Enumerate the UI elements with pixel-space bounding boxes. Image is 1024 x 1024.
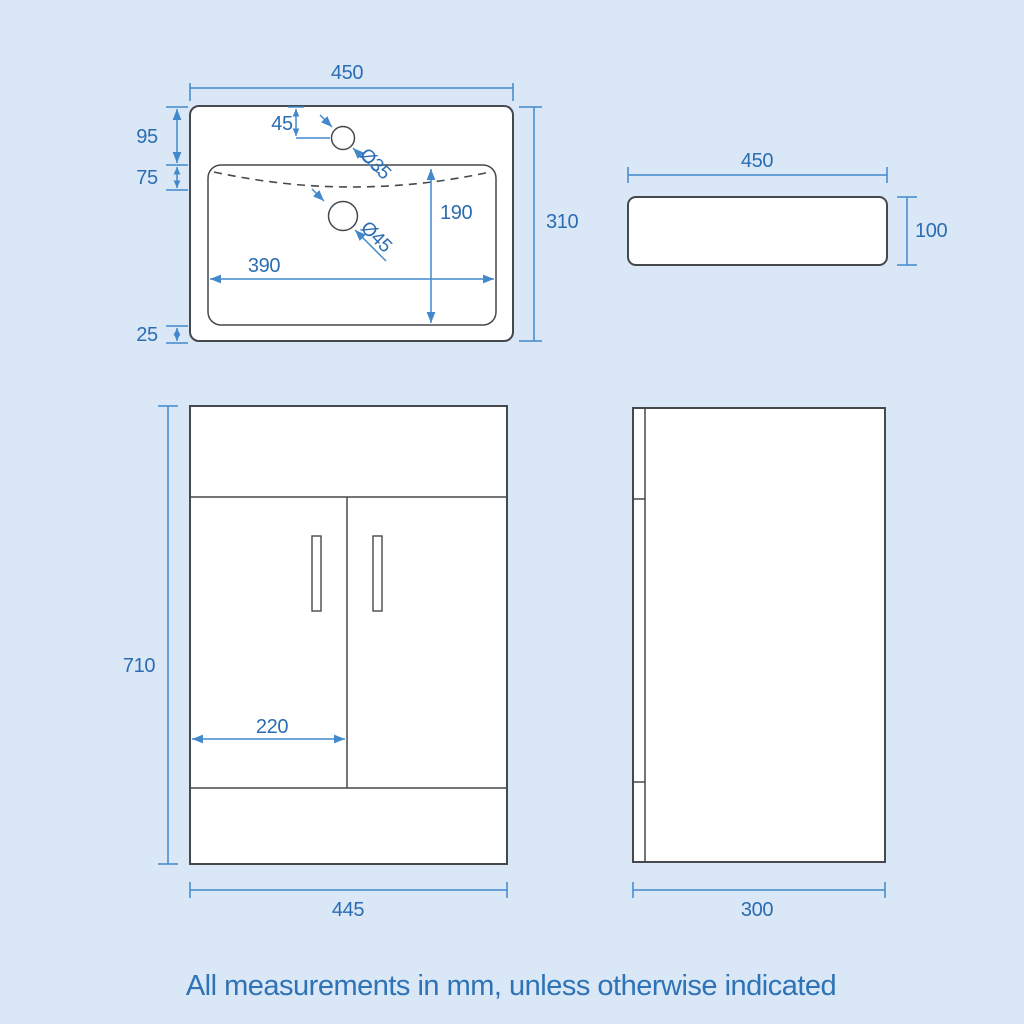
dimension-label: 75 (136, 167, 158, 189)
technical-drawing: 450 310 95 75 25 (0, 0, 1024, 1024)
dimension-label: 45 (271, 113, 293, 135)
dim-sink-side-width: 450 (628, 150, 887, 183)
dimension-label: 100 (915, 220, 947, 242)
sink-side-view: 450 100 (628, 150, 947, 265)
dimension-label: 710 (123, 655, 155, 677)
dimension-label: 220 (256, 716, 288, 738)
dim-rim-to-basin: 95 (136, 107, 188, 165)
dim-sink-overall-depth: 310 (519, 107, 578, 341)
left-door-handle (312, 536, 321, 611)
cabinet-front-outline (190, 406, 507, 864)
cabinet-side-outline (633, 408, 885, 862)
dimension-label: 450 (331, 62, 363, 84)
dimension-label: 300 (741, 899, 773, 921)
dimension-label: 95 (136, 126, 158, 148)
dim-cabinet-height: 710 (123, 406, 178, 864)
dimension-label: 450 (741, 150, 773, 172)
dim-basin-to-front: 25 (136, 324, 188, 346)
dim-sink-side-height: 100 (897, 197, 947, 265)
dimension-label: 310 (546, 211, 578, 233)
sink-side-outline (628, 197, 887, 265)
dimension-label: 390 (248, 255, 280, 277)
measurement-note: All measurements in mm, unless otherwise… (186, 970, 836, 1002)
sink-top-view: 450 310 95 75 25 (136, 62, 578, 346)
right-door-handle (373, 536, 382, 611)
dim-sink-overall-width: 450 (190, 62, 513, 101)
dimension-label: 445 (332, 899, 364, 921)
cabinet-side-view: 300 (633, 408, 885, 921)
dimension-label: 190 (440, 202, 472, 224)
dim-overflow: 75 (136, 167, 188, 190)
dimension-label: 25 (136, 324, 158, 346)
dim-cabinet-depth: 300 (633, 882, 885, 921)
dim-cabinet-width: 445 (190, 882, 507, 921)
cabinet-front-view: 710 220 445 (123, 406, 507, 921)
